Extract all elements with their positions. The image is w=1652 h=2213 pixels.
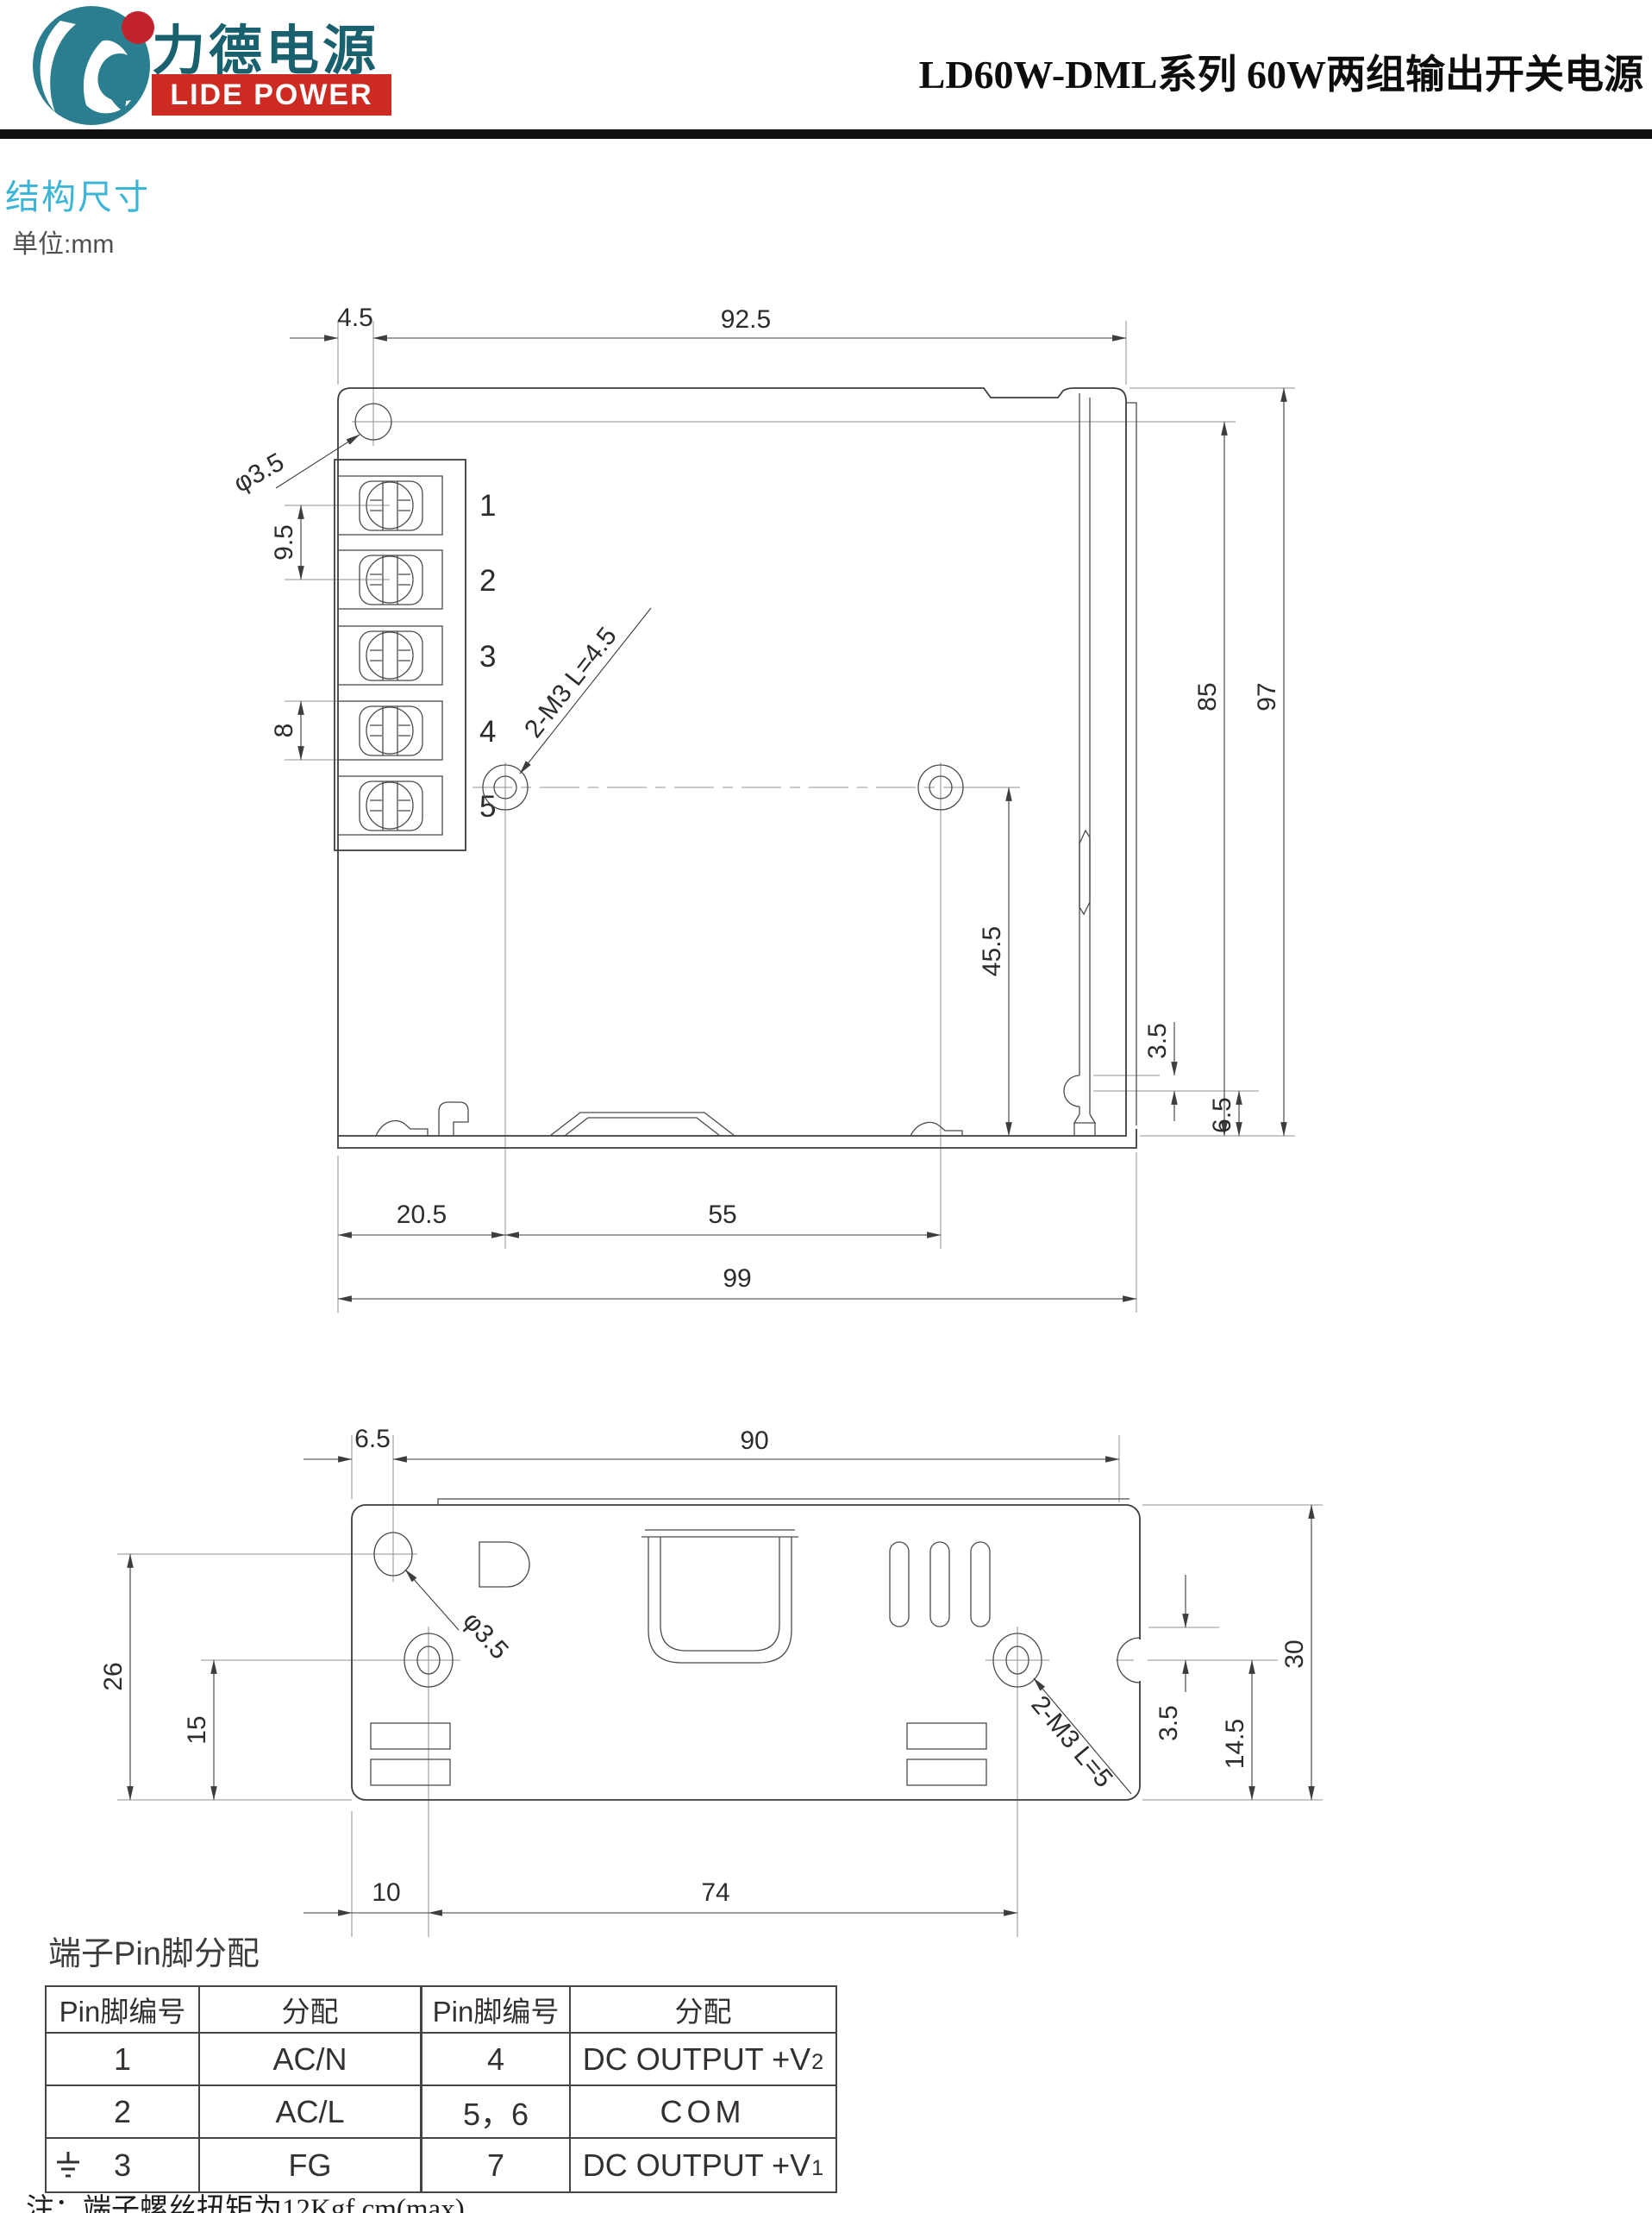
- foot-right: [910, 1122, 962, 1136]
- dim-label: 99: [723, 1264, 751, 1293]
- leader-hole-dia: [405, 1570, 459, 1630]
- ext-left: [117, 1554, 397, 1800]
- dim-label: 4.5: [337, 304, 373, 332]
- foot-left: [376, 1121, 428, 1136]
- logo-red-dot: [122, 11, 154, 44]
- u-slot-outer: [648, 1537, 792, 1663]
- col-header: 分配: [200, 1987, 422, 2034]
- vent-slot: [890, 1542, 909, 1627]
- torque-note: 注：端子螺丝扭矩为12Kgf.cm(max): [26, 2185, 465, 2213]
- dim-label: 97: [1253, 682, 1281, 711]
- table-cell-assign: AC/N: [200, 2034, 422, 2086]
- assign-text: DC OUTPUT +V: [583, 2147, 810, 2184]
- tick-hole: [369, 1527, 417, 1582]
- table-cell-assign: FG: [200, 2139, 422, 2191]
- ext-pitch: [285, 505, 390, 760]
- dim-label: 55: [708, 1201, 736, 1229]
- ext-top: [352, 1435, 1119, 1533]
- case-outline: [352, 1505, 1140, 1800]
- ground-icon: [53, 2148, 83, 2183]
- assign-text: COM: [660, 2094, 746, 2130]
- table-cell-assign: COM: [571, 2086, 835, 2139]
- case-outline: [338, 388, 1126, 1136]
- u-slot-inner: [660, 1537, 779, 1651]
- col-header: Pin脚编号: [422, 1987, 571, 2034]
- vent-slot: [971, 1542, 990, 1627]
- pin-table-title: 端子Pin脚分配: [48, 1927, 260, 1974]
- dim-label: 10: [372, 1878, 400, 1907]
- col-header: Pin脚编号: [47, 1987, 200, 2034]
- cover-lip: [438, 1499, 1129, 1505]
- foot-middle: [550, 1113, 735, 1136]
- drawing-bottom-view: φ3.5 2-M3 L=5 6.5 90 26 15: [0, 1345, 1652, 1949]
- terminal-5: [338, 776, 442, 835]
- dim-label: 74: [701, 1878, 729, 1907]
- flange-notch-arc: [1064, 1075, 1079, 1106]
- dim-label: 3.5: [1155, 1705, 1183, 1741]
- drawing-side-view: φ3.5 1 2 3 4 5 2-M3 L=4.5 4.5 92.5 9.5 8: [0, 276, 1652, 1337]
- leader-hole-dia: [276, 435, 360, 488]
- cover-flap-foot: [1074, 1114, 1095, 1136]
- logo-english-bar: LIDE POWER: [152, 74, 391, 116]
- dim-label: 6.5: [354, 1425, 391, 1453]
- terminal-label: 2: [479, 564, 496, 598]
- table-cell-pin: 1: [47, 2034, 200, 2086]
- dim-label: 2-M3 L=5: [1025, 1690, 1117, 1793]
- assign-text: DC OUTPUT +V: [583, 2041, 810, 2078]
- dim-label: φ3.5: [228, 448, 289, 498]
- vent-rect: [371, 1723, 450, 1749]
- notch-mask: [1134, 1639, 1148, 1681]
- dim-label: 2-M3 L=4.5: [519, 622, 623, 743]
- page-title: LD60W-DML系列 60W两组输出开关电源: [919, 43, 1643, 100]
- logo-chinese-text: 力德电源: [152, 7, 379, 85]
- cover-latch-slot: [1079, 831, 1090, 914]
- foot-hook: [439, 1102, 468, 1136]
- ext-flange: [1093, 1075, 1259, 1091]
- vent-rect: [907, 1759, 986, 1785]
- ext-bottom: [338, 812, 1136, 1313]
- col-header: 分配: [571, 1987, 835, 2034]
- leader-screw-note: [520, 608, 651, 774]
- vent-rect: [907, 1723, 986, 1749]
- tick-screw-right: [986, 1627, 1049, 1937]
- d-shaped-hole: [479, 1542, 529, 1587]
- assign-text: FG: [289, 2147, 332, 2184]
- u-slot-lip: [641, 1530, 798, 1537]
- table-cell-assign: DC OUTPUT +V1: [571, 2139, 835, 2191]
- table-cell-assign: DC OUTPUT +V2: [571, 2034, 835, 2086]
- dim-label: 6.5: [1208, 1097, 1236, 1133]
- dim-label: φ3.5: [457, 1607, 513, 1665]
- vent-slot: [930, 1542, 949, 1627]
- section-title: 结构尺寸: [5, 169, 150, 219]
- datasheet-page: 力德电源 LIDE POWER LD60W-DML系列 60W两组输出开关电源 …: [0, 0, 1652, 2213]
- unit-label: 单位:mm: [12, 223, 114, 260]
- lide-power-logo: [22, 2, 160, 128]
- terminal-4: [338, 701, 442, 760]
- base-plate: [338, 1129, 1136, 1148]
- terminal-block: [335, 460, 466, 850]
- dim-label: 26: [99, 1662, 128, 1690]
- table-cell-assign: AC/L: [200, 2086, 422, 2139]
- vent-rect: [371, 1759, 450, 1785]
- dim-label: 3.5: [1143, 1023, 1172, 1059]
- dim-label: 45.5: [978, 926, 1006, 976]
- table-cell-pin: 4: [422, 2034, 571, 2086]
- dim-label: 15: [183, 1715, 211, 1744]
- terminal-label: 3: [479, 640, 496, 674]
- side-panel-edge: [1126, 403, 1136, 1125]
- dim-label: 30: [1280, 1639, 1309, 1668]
- table-cell-pin: 5，6: [422, 2086, 571, 2139]
- dim-label: 9.5: [270, 524, 298, 561]
- dim-label: 92.5: [721, 305, 771, 334]
- pin-assignment-table: Pin脚编号 分配 Pin脚编号 分配 1 AC/N 4 DC OUTPUT +…: [45, 1985, 837, 2193]
- dim-label: 90: [740, 1426, 768, 1455]
- dim-label: 8: [270, 724, 298, 738]
- cover-flap: [1079, 393, 1090, 1114]
- terminal-label: 4: [479, 715, 496, 749]
- tick-screw-left: [397, 1627, 460, 1937]
- dim-label: 14.5: [1221, 1719, 1249, 1769]
- assign-subscript: 2: [811, 2050, 823, 2075]
- assign-subscript: 1: [811, 2156, 823, 2181]
- dim-label: 85: [1193, 682, 1222, 711]
- table-cell-pin: 2: [47, 2086, 200, 2139]
- terminal-label: 1: [479, 489, 496, 523]
- logo-english-text: LIDE POWER: [170, 78, 372, 112]
- dim-label: 20.5: [397, 1201, 447, 1229]
- header-divider: [0, 129, 1652, 139]
- terminal-3: [338, 626, 442, 685]
- table-cell-pin: 7: [422, 2139, 571, 2191]
